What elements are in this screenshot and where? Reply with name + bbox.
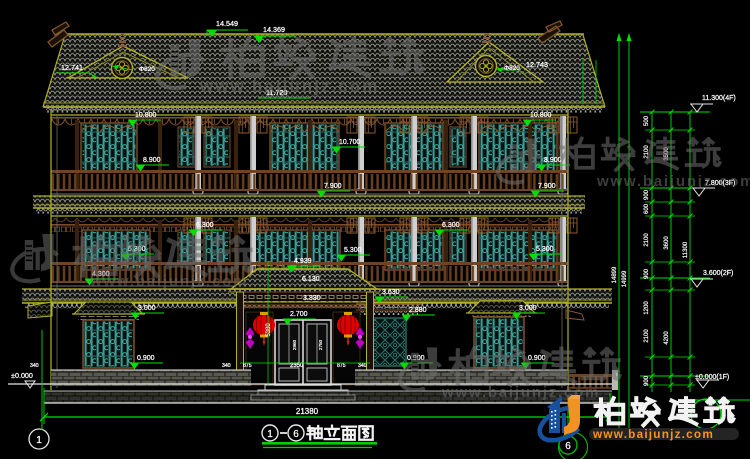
svg-text:4.939: 4.939 xyxy=(294,258,312,265)
svg-text:12.741: 12.741 xyxy=(61,63,83,72)
svg-text:900: 900 xyxy=(644,189,650,200)
svg-text:3.630: 3.630 xyxy=(382,289,400,296)
svg-text:3600: 3600 xyxy=(664,236,670,250)
svg-text:875: 875 xyxy=(337,363,346,369)
svg-text:5380: 5380 xyxy=(266,323,272,337)
svg-text:www.baijunjz.com: www.baijunjz.com xyxy=(596,173,750,190)
svg-text:340: 340 xyxy=(30,363,39,369)
svg-text:10.700: 10.700 xyxy=(339,139,361,146)
svg-text:4200: 4200 xyxy=(664,331,670,345)
svg-text:11.300(4F): 11.300(4F) xyxy=(702,95,736,102)
svg-text:5.300: 5.300 xyxy=(344,247,362,254)
svg-text:875: 875 xyxy=(243,363,252,369)
svg-text:6.300: 6.300 xyxy=(196,222,214,229)
svg-text:900: 900 xyxy=(644,268,650,279)
svg-text:7.900: 7.900 xyxy=(324,183,342,190)
svg-text:14999: 14999 xyxy=(622,270,628,287)
svg-text:8.900: 8.900 xyxy=(544,157,562,164)
svg-text:10.800: 10.800 xyxy=(135,112,157,119)
svg-text:Φ820: Φ820 xyxy=(139,66,155,73)
svg-text:2.700: 2.700 xyxy=(290,311,308,318)
svg-text:2350: 2350 xyxy=(290,363,304,369)
svg-text:1200: 1200 xyxy=(644,301,650,315)
svg-text:±0.000: ±0.000 xyxy=(11,371,33,380)
svg-text:12.743: 12.743 xyxy=(526,60,548,69)
svg-text:0.900: 0.900 xyxy=(528,355,546,362)
svg-text:2.880: 2.880 xyxy=(409,307,427,314)
svg-text:14.369: 14.369 xyxy=(263,25,285,34)
svg-text:340: 340 xyxy=(358,363,367,369)
svg-text:6.300: 6.300 xyxy=(442,222,460,229)
svg-text:3.000: 3.000 xyxy=(519,305,537,312)
svg-text:2100: 2100 xyxy=(644,329,650,343)
svg-text:14.549: 14.549 xyxy=(216,19,238,28)
svg-text:8.900: 8.900 xyxy=(143,157,161,164)
svg-text:6: 6 xyxy=(565,441,571,452)
svg-text:3.330: 3.330 xyxy=(303,295,321,302)
svg-text:7.900: 7.900 xyxy=(538,183,556,190)
svg-text:5.300: 5.300 xyxy=(536,246,554,253)
svg-text:www.baijunjz.com: www.baijunjz.com xyxy=(89,273,248,290)
svg-text:www.baijunjz.com: www.baijunjz.com xyxy=(592,427,714,441)
svg-text:2750: 2750 xyxy=(318,339,323,350)
svg-text:2960: 2960 xyxy=(292,339,297,350)
svg-text:1: 1 xyxy=(267,429,273,440)
svg-text:340: 340 xyxy=(222,363,231,369)
svg-text:600: 600 xyxy=(644,203,650,214)
svg-text:1: 1 xyxy=(36,435,42,446)
svg-text:2100: 2100 xyxy=(644,233,650,247)
svg-text:21380: 21380 xyxy=(296,407,319,416)
svg-text:3.000: 3.000 xyxy=(138,305,156,312)
svg-text:0.900: 0.900 xyxy=(137,355,155,362)
svg-text:www.baijunjz.com: www.baijunjz.com xyxy=(199,77,379,96)
svg-text:6.130: 6.130 xyxy=(302,276,320,283)
svg-text:900: 900 xyxy=(644,375,650,386)
svg-text:10.800: 10.800 xyxy=(530,112,552,119)
svg-text:500: 500 xyxy=(644,115,650,126)
svg-text:11300: 11300 xyxy=(683,241,689,258)
svg-text:6: 6 xyxy=(293,429,299,440)
svg-text:3.600(2F): 3.600(2F) xyxy=(703,270,733,277)
svg-text:14899: 14899 xyxy=(612,266,618,283)
